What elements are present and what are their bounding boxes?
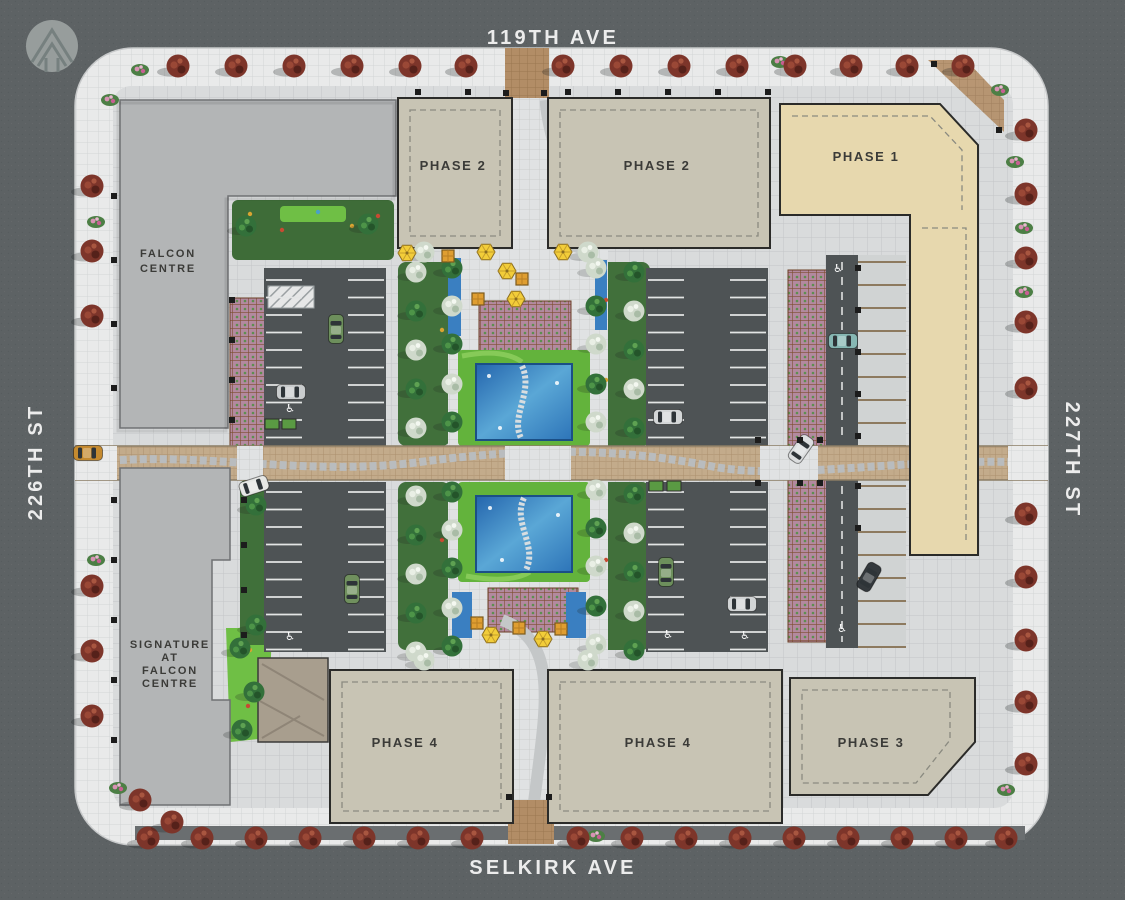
patio-table-icon	[471, 617, 483, 629]
car	[329, 315, 344, 344]
flower-bed	[991, 84, 1009, 96]
accessible-parking-icon: ♿	[833, 262, 843, 275]
flower-bed	[1006, 156, 1024, 168]
car	[74, 446, 103, 461]
bollard	[996, 127, 1002, 133]
north-logo-icon	[26, 20, 78, 72]
phase4-east-label: PHASE 4	[625, 735, 692, 750]
street-label-selkirk-ave: SELKIRK AVE	[469, 857, 636, 879]
falcon-centre-label-line2: CENTRE	[140, 263, 196, 275]
bollard	[229, 377, 235, 383]
bollard	[755, 480, 761, 486]
car	[829, 334, 858, 349]
street-label-226th-st: 226TH ST	[25, 404, 47, 521]
signature-label-line4: CENTRE	[142, 678, 198, 690]
bollard	[665, 89, 671, 95]
bollard	[229, 417, 235, 423]
bollard	[855, 265, 861, 271]
flower-bed	[997, 784, 1015, 796]
phase4-west-label: PHASE 4	[372, 735, 439, 750]
car	[277, 385, 306, 400]
bollard	[615, 89, 621, 95]
phase2-east-label: PHASE 2	[624, 158, 691, 173]
bollard	[931, 61, 937, 67]
patio-table-icon	[516, 273, 528, 285]
bollard	[715, 89, 721, 95]
accessible-parking-icon: ♿	[285, 630, 295, 643]
flower-bed	[109, 782, 127, 794]
bollard	[546, 794, 552, 800]
bollard	[241, 542, 247, 548]
building-amenity	[258, 658, 328, 742]
bollard	[855, 307, 861, 313]
bollard	[855, 391, 861, 397]
building-phase2-west	[398, 98, 512, 248]
bollard	[241, 497, 247, 503]
bollard	[506, 794, 512, 800]
bollard	[541, 90, 547, 96]
patio-table-icon	[472, 293, 484, 305]
bollard	[817, 437, 823, 443]
flower-bed	[587, 830, 605, 842]
phase2-west-label: PHASE 2	[420, 158, 487, 173]
signature-label-line2: AT	[161, 652, 178, 664]
patio-table-icon	[555, 623, 567, 635]
bollard	[755, 437, 761, 443]
accessible-parking-icon: ♿	[663, 628, 673, 641]
flower-bed	[131, 64, 149, 76]
accessible-parking-icon: ♿	[837, 622, 847, 635]
bollard	[765, 89, 771, 95]
patio-table-icon	[442, 250, 454, 262]
street-label-227th-st: 227TH ST	[1061, 402, 1083, 519]
patio-umbrella-icon	[498, 263, 516, 279]
bollard	[797, 437, 803, 443]
bollard	[817, 480, 823, 486]
bollard	[855, 433, 861, 439]
bollard	[111, 677, 117, 683]
patio-table-icon	[513, 622, 525, 634]
patio-umbrella-icon	[534, 631, 552, 647]
accessible-parking-icon: ♿	[285, 402, 295, 415]
phase3-label: PHASE 3	[838, 735, 905, 750]
bollard	[111, 617, 117, 623]
car	[728, 597, 757, 612]
patio-umbrella-icon	[477, 244, 495, 260]
bollard	[111, 497, 117, 503]
flower-bed	[87, 216, 105, 228]
bollard	[503, 90, 509, 96]
building-phase2-east	[548, 98, 770, 248]
bollard	[797, 480, 803, 486]
falcon-centre-label-line1: FALCON	[140, 248, 196, 260]
bollard	[111, 321, 117, 327]
car	[659, 558, 674, 587]
car	[345, 575, 360, 604]
bollard	[111, 737, 117, 743]
patio-umbrella-icon	[398, 245, 416, 261]
bollard	[229, 297, 235, 303]
car	[654, 410, 683, 425]
site-plan: FALCON CENTRE SIGNATURE AT FALCON CENTRE…	[0, 0, 1125, 900]
signature-label-line3: FALCON	[142, 665, 198, 677]
bollard	[855, 483, 861, 489]
phase1-label: PHASE 1	[833, 149, 900, 164]
street-label-119th-ave: 119TH AVE	[487, 27, 619, 49]
flower-bed	[1015, 286, 1033, 298]
patio-umbrella-icon	[482, 627, 500, 643]
flower-bed	[87, 554, 105, 566]
bollard	[111, 557, 117, 563]
flower-bed	[1015, 222, 1033, 234]
bollard	[565, 89, 571, 95]
bollard	[111, 193, 117, 199]
patio-umbrella-icon	[507, 291, 525, 307]
bollard	[855, 525, 861, 531]
accessible-parking-icon: ♿	[740, 629, 750, 642]
flower-bed	[101, 94, 119, 106]
bollard	[241, 587, 247, 593]
bollard	[855, 349, 861, 355]
bollard	[465, 89, 471, 95]
bollard	[415, 89, 421, 95]
bollard	[111, 257, 117, 263]
bollard	[111, 385, 117, 391]
bollard	[229, 337, 235, 343]
signature-label-line1: SIGNATURE	[130, 639, 210, 651]
bollard	[241, 632, 247, 638]
patio-umbrella-icon	[554, 244, 572, 260]
